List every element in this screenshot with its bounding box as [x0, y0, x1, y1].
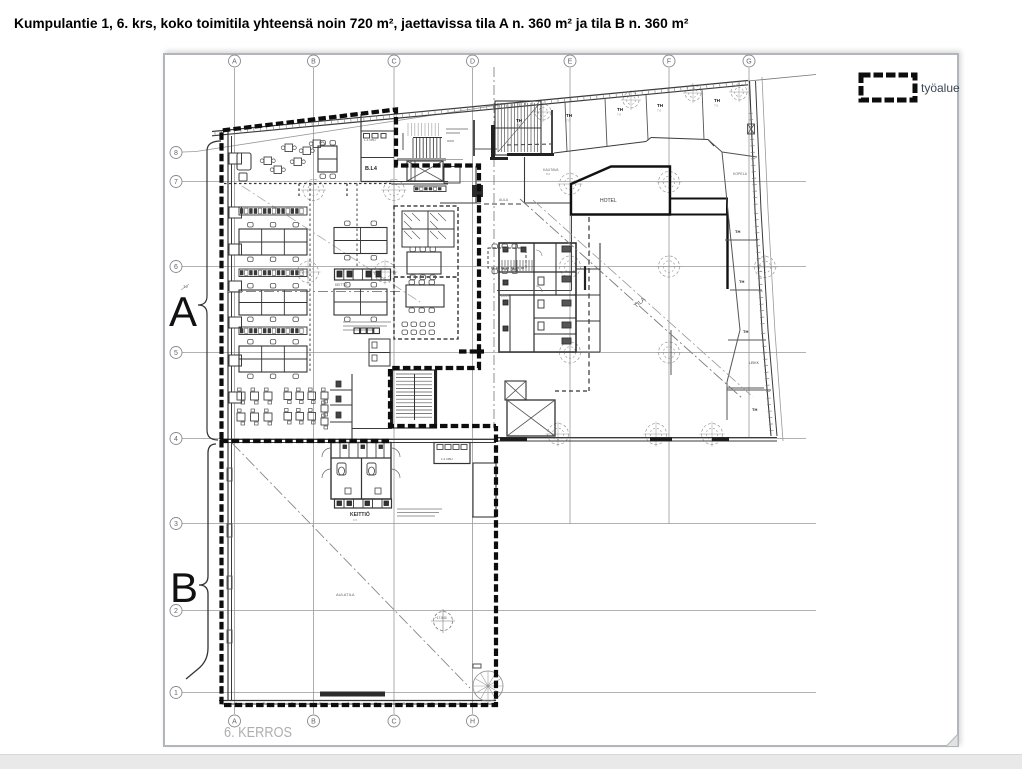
- svg-text:A: A: [232, 59, 237, 66]
- svg-text:HALLI: HALLI: [499, 294, 509, 298]
- svg-text:G: G: [746, 59, 751, 66]
- svg-text:5: 5: [174, 350, 178, 357]
- svg-text:TH: TH: [739, 279, 744, 284]
- svg-text:6: 6: [174, 264, 178, 271]
- svg-text:1: 1: [174, 690, 178, 697]
- svg-text:LEIKK: LEIKK: [749, 361, 760, 365]
- svg-text:7.0: 7.0: [617, 113, 622, 117]
- svg-text:7.0: 7.0: [714, 104, 719, 108]
- svg-text:HOTEL: HOTEL: [600, 198, 617, 204]
- svg-text:4: 4: [174, 436, 178, 443]
- svg-text:KEITTIÖ: KEITTIÖ: [335, 283, 348, 287]
- svg-text:TH: TH: [752, 407, 757, 412]
- svg-text:B: B: [170, 564, 198, 611]
- svg-text:TH: TH: [735, 229, 740, 234]
- svg-text:B: B: [311, 719, 316, 726]
- svg-text:1-4 OBH: 1-4 OBH: [441, 457, 453, 461]
- svg-text:B: B: [311, 59, 316, 66]
- svg-text:8.0: 8.0: [546, 172, 551, 176]
- svg-text:TH: TH: [617, 107, 623, 112]
- svg-text:KEITTIÖ: KEITTIÖ: [350, 511, 370, 518]
- svg-text:3: 3: [174, 521, 178, 528]
- svg-text:D: D: [470, 59, 475, 66]
- svg-text:7.0: 7.0: [516, 124, 521, 128]
- svg-text:7: 7: [174, 179, 178, 186]
- svg-text:TH: TH: [714, 98, 720, 103]
- svg-text:työalue: työalue: [921, 81, 960, 95]
- svg-text:TH: TH: [516, 118, 522, 123]
- svg-text:C: C: [391, 59, 396, 66]
- svg-text:6. KERROS: 6. KERROS: [224, 725, 292, 741]
- svg-text:1-4 ÖBH: 1-4 ÖBH: [364, 138, 376, 142]
- svg-text:KOPELA: KOPELA: [733, 172, 748, 176]
- svg-text:C: C: [391, 719, 396, 726]
- svg-text:+17.840: +17.840: [435, 616, 447, 620]
- svg-text:B.L4: B.L4: [365, 166, 378, 172]
- svg-text:TILA: TILA: [633, 297, 647, 310]
- svg-text:H: H: [470, 719, 475, 726]
- svg-text:7.0: 7.0: [657, 109, 662, 113]
- svg-text:AULATILA: AULATILA: [336, 592, 355, 597]
- svg-text:TH: TH: [566, 113, 572, 118]
- svg-text:E: E: [568, 59, 573, 66]
- svg-text:TH: TH: [743, 329, 748, 334]
- svg-text:TH: TH: [657, 103, 663, 108]
- svg-text:7.0: 7.0: [566, 119, 571, 123]
- svg-text:8: 8: [174, 150, 178, 157]
- svg-text:A: A: [169, 288, 197, 335]
- svg-text:F: F: [667, 59, 671, 66]
- svg-text:AULA: AULA: [499, 198, 509, 202]
- svg-text:9.5: 9.5: [353, 518, 358, 522]
